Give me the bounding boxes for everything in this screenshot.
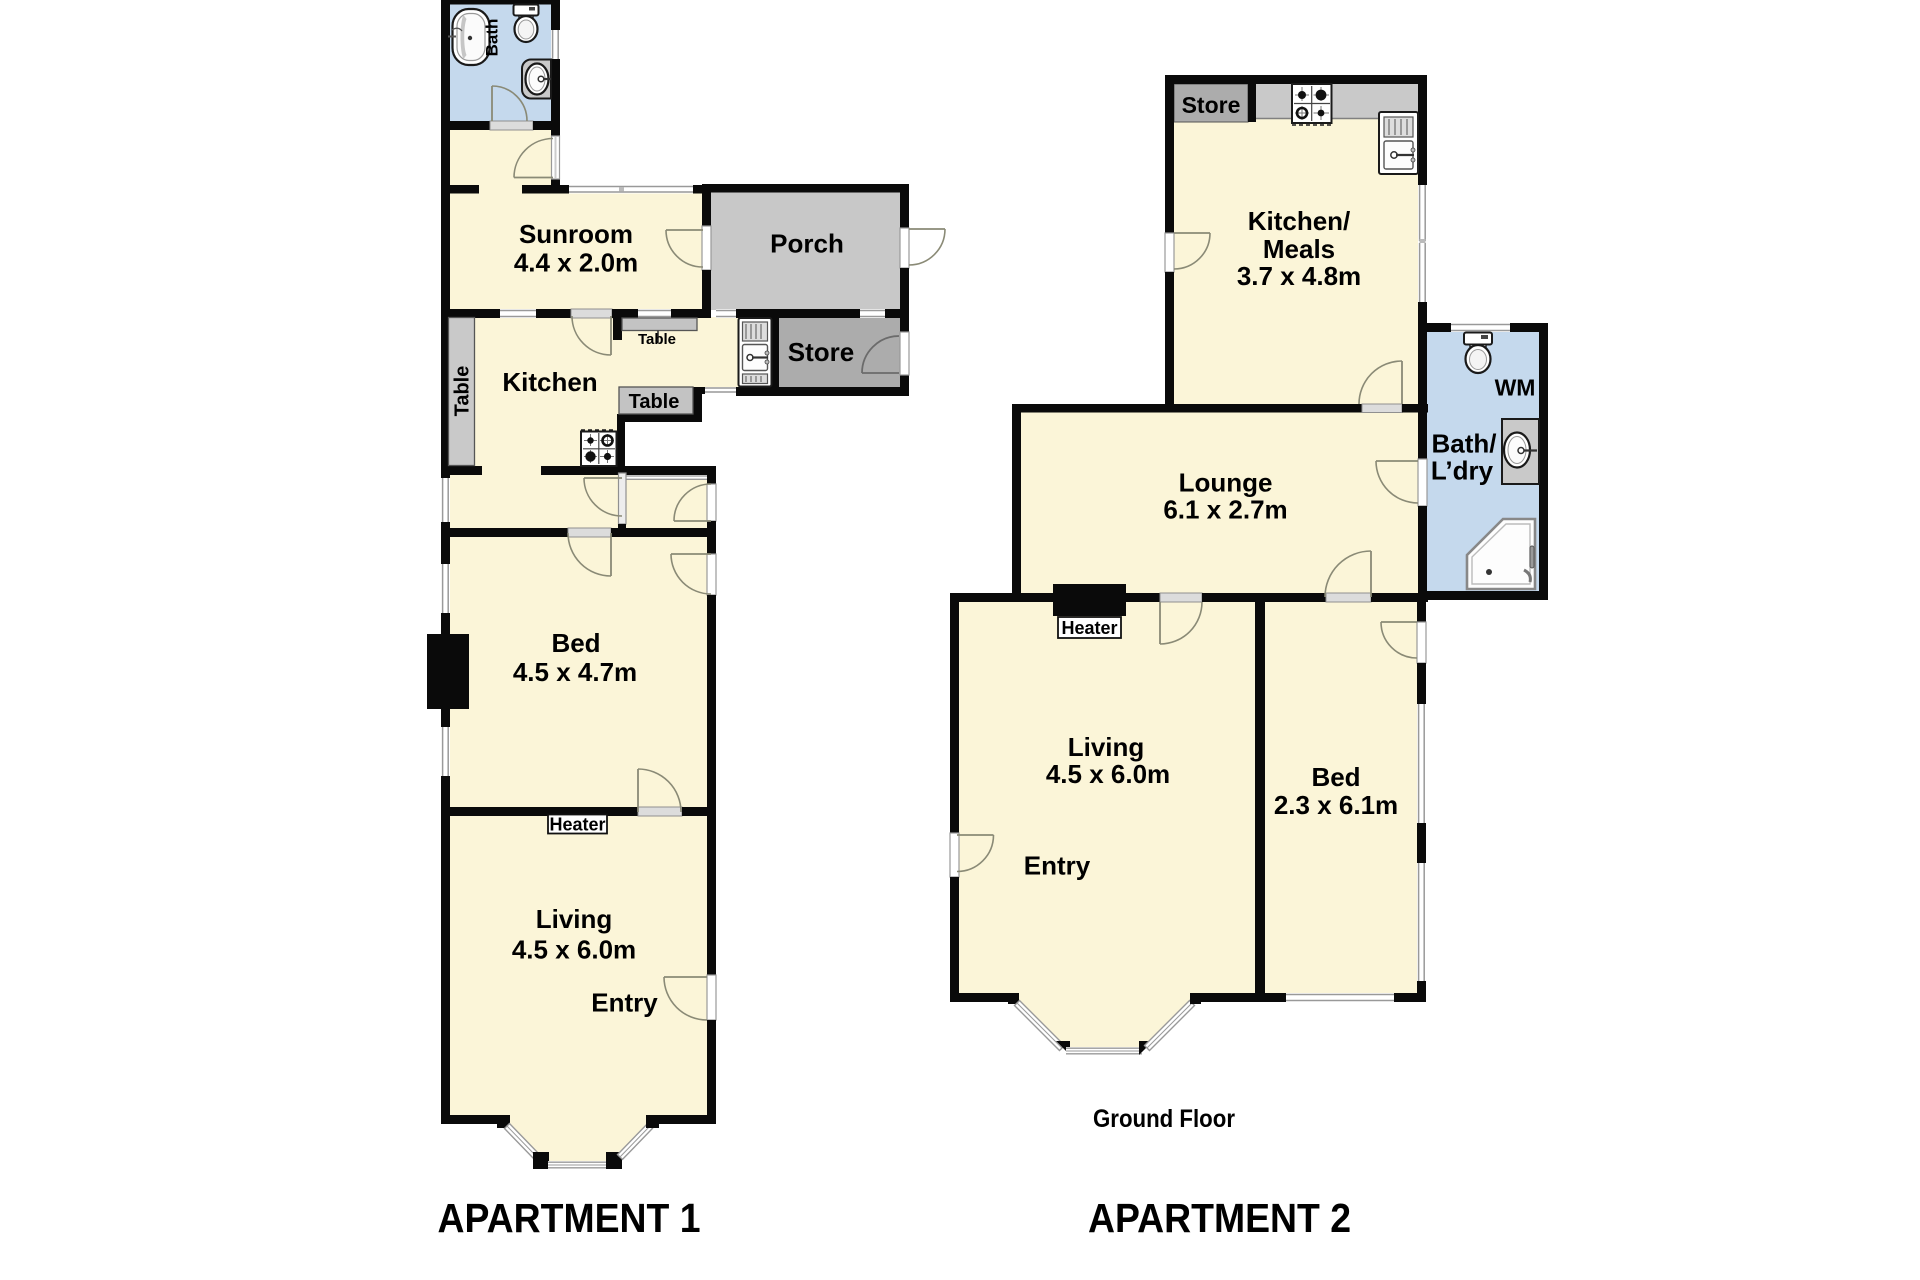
svg-text:3.7 x 4.8m: 3.7 x 4.8m bbox=[1237, 261, 1361, 291]
svg-text:Bed: Bed bbox=[1311, 762, 1360, 792]
svg-text:Heater: Heater bbox=[1061, 618, 1117, 638]
svg-text:Bath/: Bath/ bbox=[1432, 429, 1497, 459]
svg-text:Ground Floor: Ground Floor bbox=[1093, 1105, 1235, 1133]
svg-text:Living: Living bbox=[536, 904, 613, 934]
svg-text:4.4 x 2.0m: 4.4 x 2.0m bbox=[514, 248, 638, 278]
svg-text:Sunroom: Sunroom bbox=[519, 219, 633, 249]
svg-text:Kitchen: Kitchen bbox=[502, 367, 597, 397]
svg-text:4.5 x 6.0m: 4.5 x 6.0m bbox=[1046, 759, 1170, 789]
svg-text:Heater: Heater bbox=[549, 815, 605, 835]
svg-text:Meals: Meals bbox=[1263, 234, 1335, 264]
svg-text:Porch: Porch bbox=[770, 229, 844, 259]
svg-text:Entry: Entry bbox=[591, 988, 658, 1018]
svg-text:Store: Store bbox=[1182, 92, 1241, 118]
svg-text:4.5 x 4.7m: 4.5 x 4.7m bbox=[513, 657, 637, 687]
svg-text:APARTMENT 1: APARTMENT 1 bbox=[438, 1195, 701, 1241]
svg-text:WM: WM bbox=[1495, 375, 1536, 401]
svg-text:APARTMENT 2: APARTMENT 2 bbox=[1088, 1195, 1351, 1241]
svg-text:Table: Table bbox=[629, 391, 680, 413]
svg-text:4.5 x 6.0m: 4.5 x 6.0m bbox=[512, 935, 636, 965]
svg-text:Table: Table bbox=[451, 366, 473, 417]
svg-text:Lounge: Lounge bbox=[1179, 468, 1273, 498]
svg-text:Store: Store bbox=[788, 337, 854, 367]
svg-text:Bath: Bath bbox=[482, 19, 501, 57]
svg-text:L’dry: L’dry bbox=[1431, 456, 1494, 486]
svg-text:2.3 x 6.1m: 2.3 x 6.1m bbox=[1274, 790, 1398, 820]
svg-text:6.1 x 2.7m: 6.1 x 2.7m bbox=[1163, 495, 1287, 525]
svg-text:Entry: Entry bbox=[1024, 851, 1091, 881]
svg-text:Living: Living bbox=[1068, 732, 1145, 762]
svg-text:Table: Table bbox=[638, 331, 676, 348]
svg-text:Bed: Bed bbox=[551, 628, 600, 658]
svg-text:Kitchen/: Kitchen/ bbox=[1248, 206, 1351, 236]
